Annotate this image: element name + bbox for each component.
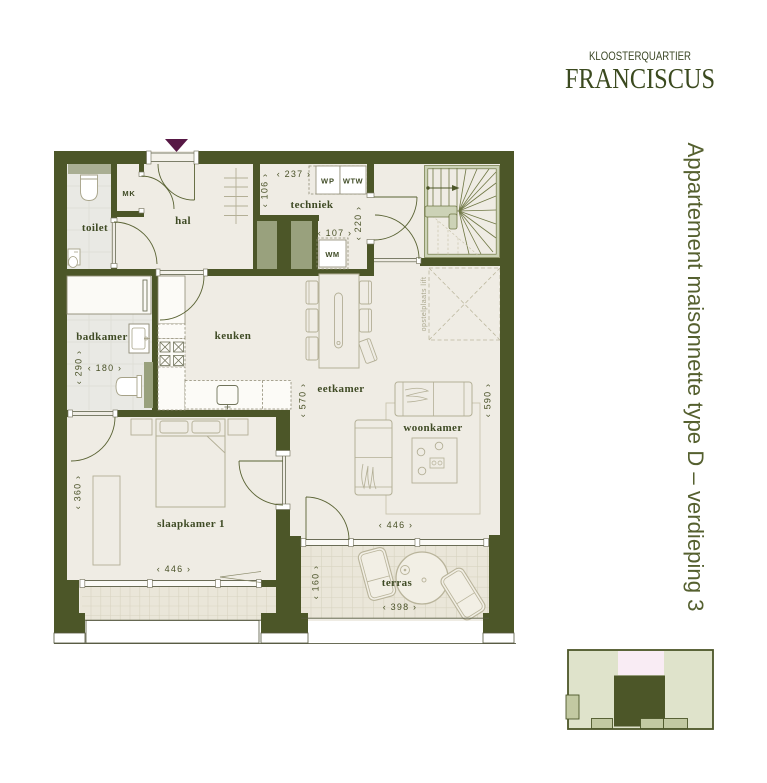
svg-text:terras: terras bbox=[382, 577, 413, 589]
svg-text:WM: WM bbox=[325, 250, 339, 259]
svg-text:‹ 446 ›: ‹ 446 › bbox=[157, 564, 191, 574]
svg-text:KLOOSTERQUARTIER: KLOOSTERQUARTIER bbox=[589, 49, 691, 63]
svg-text:keuken: keuken bbox=[215, 330, 252, 342]
svg-text:‹ 590 ›: ‹ 590 › bbox=[483, 383, 493, 417]
svg-text:eetkamer: eetkamer bbox=[317, 383, 364, 395]
svg-text:Appartement maisonnette type D: Appartement maisonnette type D – verdiep… bbox=[683, 143, 708, 612]
svg-text:FRANCISCUS: FRANCISCUS bbox=[565, 64, 715, 95]
svg-text:‹ 398 ›: ‹ 398 › bbox=[383, 602, 417, 612]
svg-text:MK: MK bbox=[122, 189, 135, 198]
svg-text:‹ 107 ›: ‹ 107 › bbox=[318, 228, 352, 238]
svg-text:‹ 290 ›: ‹ 290 › bbox=[74, 350, 84, 384]
svg-text:toilet: toilet bbox=[82, 222, 108, 234]
svg-text:badkamer: badkamer bbox=[76, 331, 127, 343]
svg-text:slaapkamer 1: slaapkamer 1 bbox=[157, 518, 225, 530]
svg-text:‹ 446 ›: ‹ 446 › bbox=[379, 520, 413, 530]
svg-text:WTW: WTW bbox=[343, 177, 364, 186]
svg-text:techniek: techniek bbox=[291, 199, 334, 211]
svg-text:‹ 570 ›: ‹ 570 › bbox=[298, 383, 308, 417]
svg-text:‹ 220 ›: ‹ 220 › bbox=[353, 206, 363, 240]
svg-text:‹ 237 ›: ‹ 237 › bbox=[277, 169, 311, 179]
svg-text:‹ 160 ›: ‹ 160 › bbox=[311, 565, 321, 599]
svg-text:opstelplaats lift: opstelplaats lift bbox=[421, 277, 428, 332]
svg-text:woonkamer: woonkamer bbox=[403, 422, 462, 434]
svg-text:‹ 106 ›: ‹ 106 › bbox=[260, 173, 270, 207]
svg-text:‹ 180 ›: ‹ 180 › bbox=[88, 363, 122, 373]
svg-text:WP: WP bbox=[321, 177, 335, 186]
svg-text:hal: hal bbox=[175, 215, 191, 227]
svg-text:‹ 360 ›: ‹ 360 › bbox=[73, 475, 83, 509]
